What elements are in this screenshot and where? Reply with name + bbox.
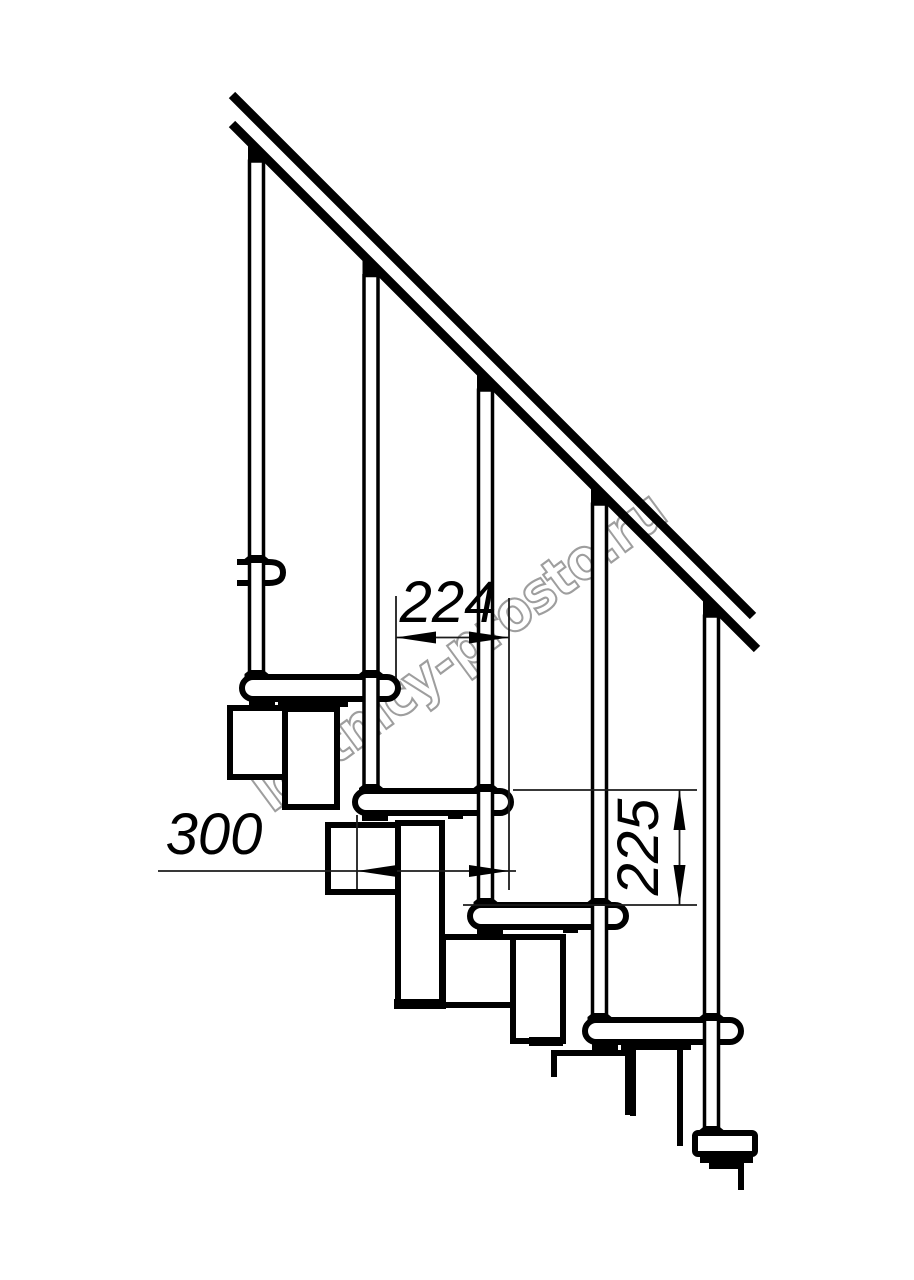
module-column-3 bbox=[513, 937, 563, 1041]
baluster-4 bbox=[593, 503, 607, 1020]
module-box-3a bbox=[443, 937, 518, 1005]
collar bbox=[359, 784, 383, 792]
module-column-3-foot bbox=[529, 1037, 563, 1046]
dimension-value-step-run: 224 bbox=[399, 570, 497, 635]
module-box-5a-open bbox=[712, 1166, 741, 1187]
baluster-1 bbox=[250, 160, 264, 677]
clamp-strip bbox=[700, 1154, 753, 1163]
clamp bbox=[249, 698, 275, 707]
clamp-strip bbox=[621, 1042, 691, 1050]
module-box-2a bbox=[328, 825, 405, 892]
clamp bbox=[448, 812, 463, 819]
technical-drawing-canvas: lestnicy-prosto.ru bbox=[0, 0, 914, 1280]
baluster-3 bbox=[479, 389, 493, 905]
clamp bbox=[592, 1041, 618, 1050]
module-box-1a bbox=[230, 708, 287, 777]
collar bbox=[245, 670, 269, 678]
staircase-drawing: lestnicy-prosto.ru bbox=[0, 0, 914, 1280]
module-column-2-foot bbox=[394, 999, 446, 1009]
clamp bbox=[563, 926, 578, 933]
clamp bbox=[477, 926, 503, 935]
dimension-arrow-down bbox=[674, 865, 686, 905]
module-box-4a-open bbox=[554, 1053, 633, 1113]
dimension-value-tread-depth: 300 bbox=[166, 802, 263, 867]
baluster-2 bbox=[364, 274, 378, 790]
dimension-value-riser-height: 225 bbox=[606, 798, 671, 897]
collar bbox=[588, 1013, 612, 1021]
collar bbox=[359, 670, 383, 678]
clamp bbox=[362, 812, 388, 821]
collar bbox=[474, 784, 498, 792]
baluster-5 bbox=[705, 615, 719, 1133]
tread-5-fragment bbox=[695, 1133, 755, 1154]
clamp-strip bbox=[278, 699, 348, 707]
collar bbox=[245, 555, 269, 563]
collar bbox=[700, 1013, 724, 1021]
module-column-1 bbox=[285, 709, 337, 807]
collar bbox=[700, 1126, 724, 1134]
handrail bbox=[232, 95, 757, 649]
dimension-arrow-up bbox=[674, 790, 686, 830]
module-column-2 bbox=[398, 823, 442, 1003]
